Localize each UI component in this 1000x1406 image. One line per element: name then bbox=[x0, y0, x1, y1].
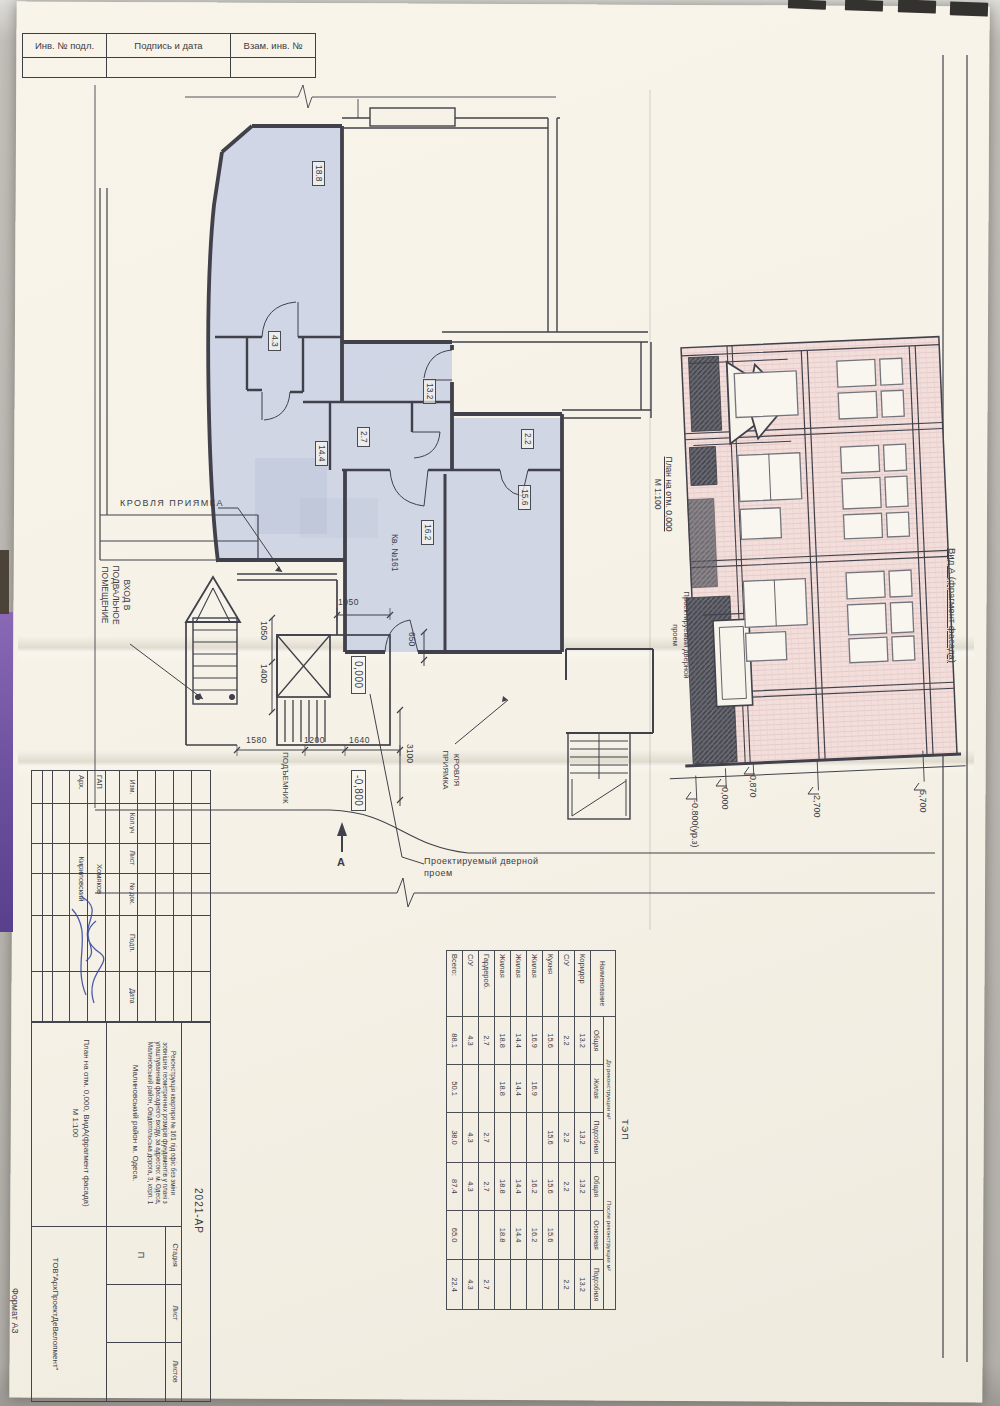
dim-label: 1640 bbox=[349, 735, 370, 745]
room-area-label: 18.8 bbox=[312, 161, 325, 186]
tep-value: 14.4 bbox=[511, 1210, 527, 1259]
tep-room-name: Кухня bbox=[543, 951, 559, 1017]
tep-value: 4.3 bbox=[463, 1017, 479, 1065]
tep-row: С/У4.34.34.34.3 bbox=[463, 951, 479, 1310]
dim-label: 650 bbox=[407, 632, 417, 646]
label-line: ПРИЯМКА bbox=[440, 744, 451, 796]
tb-col-ndok: № док. bbox=[129, 873, 136, 915]
room-area-label: 2.7 bbox=[357, 427, 370, 447]
label-line: План на отм. 0,000 bbox=[663, 438, 674, 550]
tep-value: 2.7 bbox=[479, 1260, 495, 1310]
tep-value bbox=[543, 1260, 559, 1310]
tep-row: Гардероб.2.72.72.72.7 bbox=[479, 951, 495, 1310]
stamp-cell: Подпись и дата bbox=[107, 34, 231, 58]
tb-col-izm: Изм. bbox=[129, 771, 136, 803]
room-area-label: 15.6 bbox=[518, 485, 531, 510]
room-area-label: 2.2 bbox=[521, 429, 534, 449]
tb-description: Реконструкція квартири № 161 під офіс бе… bbox=[147, 1023, 177, 1223]
tep-subhead: Подсобная bbox=[591, 1113, 604, 1163]
tep-value bbox=[463, 1065, 479, 1113]
facade-view bbox=[651, 336, 967, 802]
label-line: Реконструкція квартири № 161 під офіс бе… bbox=[169, 1023, 177, 1223]
label-line: улаштуванням фасадного входу, за адресою… bbox=[154, 1023, 162, 1223]
tep-value: 18.8 bbox=[495, 1017, 511, 1065]
tb-col-data: Дата bbox=[129, 971, 136, 1021]
tep-value: 18.8 bbox=[495, 1162, 511, 1210]
label-line: проем bbox=[670, 575, 681, 695]
tep-value: 4.3 bbox=[463, 1260, 479, 1310]
label-line: ПОДВАЛЬНОЕ bbox=[110, 552, 121, 638]
pit-roof-label-2: КРОВЛЯ ПРИЯМКА bbox=[440, 744, 462, 796]
tep-value: 13.2 bbox=[575, 1113, 591, 1163]
inventory-stamp-strip: Инв. № подл. Подпись и дата Взам. инв. № bbox=[22, 33, 316, 78]
tep-value: 15.6 bbox=[543, 1017, 559, 1065]
pit-roof-label: КРОВЛЯ ПРИЯМКА bbox=[120, 498, 224, 508]
tep-value bbox=[543, 1065, 559, 1113]
basement-entrance-label: ВХОД В ПОДВАЛЬНОЕ ПОМЕЩЕНИЕ bbox=[99, 552, 132, 638]
title-block: Изм. Кол.уч Лист № док. Подп. Дата ГАП Х… bbox=[31, 770, 211, 1402]
tep-subhead: Подсобная bbox=[591, 1260, 604, 1310]
label-line: ВХОД В bbox=[121, 552, 132, 638]
label-line: проем bbox=[424, 867, 539, 879]
facade-door-note: Проектируемый дверной проем bbox=[670, 575, 692, 695]
tep-value: 50.1 bbox=[447, 1065, 463, 1113]
tep-value bbox=[575, 1210, 591, 1259]
facade-elevation: 0,870 bbox=[748, 775, 758, 798]
tep-value: 4.3 bbox=[463, 1113, 479, 1163]
tep-value bbox=[527, 1113, 543, 1163]
tep-value: 16.2 bbox=[527, 1162, 543, 1210]
room-area-label: 13.2 bbox=[423, 379, 436, 404]
tep-group-after: После реконструкции м² bbox=[604, 1162, 616, 1309]
pen-signature bbox=[64, 891, 116, 1011]
tb-stage-value: П bbox=[136, 1226, 146, 1284]
tep-value bbox=[527, 1260, 543, 1310]
tb-doc-code: 2021-АР bbox=[193, 1021, 204, 1401]
tep-group-before: До реконструкции м² bbox=[604, 1017, 616, 1163]
tep-value bbox=[559, 1065, 575, 1113]
tep-room-name: Всего: bbox=[447, 951, 463, 1017]
tep-value: 2.2 bbox=[559, 1260, 575, 1310]
tep-value bbox=[575, 1065, 591, 1113]
facade-title: Вид А (фрагмент фасада) bbox=[947, 548, 958, 663]
tep-value bbox=[559, 1210, 575, 1259]
tb-company: ТОВ"АрхПроектДеВелопмент" bbox=[51, 1228, 60, 1400]
dim-label: 3100 bbox=[405, 744, 415, 763]
facade-elevation: 5,700 bbox=[918, 790, 928, 813]
tep-value bbox=[463, 1210, 479, 1259]
tep-value: 15.6 bbox=[543, 1113, 559, 1163]
label-line: зовнішніх геометричних розмірів фундамен… bbox=[162, 1023, 170, 1223]
dim-label: 1580 bbox=[246, 735, 267, 745]
label-line: М 1:100 bbox=[652, 438, 663, 550]
tep-value bbox=[511, 1113, 527, 1163]
tep-subhead: Основная bbox=[591, 1210, 604, 1259]
tep-value: 14.4 bbox=[511, 1162, 527, 1210]
tep-room-name: Жилая bbox=[527, 951, 543, 1017]
tep-value: 15.6 bbox=[543, 1162, 559, 1210]
stamp-cell-empty bbox=[23, 58, 107, 78]
tb-district: Малиновський район м. Одеса. bbox=[131, 1023, 140, 1223]
facade-elevation: 0,000 bbox=[720, 787, 730, 810]
projected-door-note: Проектируемый дверной проем bbox=[424, 855, 539, 879]
tep-value: 22.4 bbox=[447, 1260, 463, 1310]
elevation-label: 0,000 bbox=[351, 656, 366, 694]
room-area-label: 16.2 bbox=[421, 520, 434, 545]
lift-label: ПОДЪЕМНИК bbox=[281, 752, 290, 804]
tep-room-name: Гардероб. bbox=[479, 951, 495, 1017]
stamp-cell-empty bbox=[107, 58, 231, 78]
tep-row: Жилая18.818.818.818.8 bbox=[495, 951, 511, 1310]
tb-col-podp: Подп. bbox=[129, 915, 136, 971]
tep-value: 18.8 bbox=[495, 1210, 511, 1259]
tep-value: 13.2 bbox=[575, 1017, 591, 1065]
tep-value bbox=[511, 1260, 527, 1310]
tep-value: 2.7 bbox=[479, 1162, 495, 1210]
tep-subhead: Общая bbox=[591, 1162, 604, 1210]
tep-value bbox=[479, 1210, 495, 1259]
tep-room-name: Жилая bbox=[495, 951, 511, 1017]
section-mark: А bbox=[337, 856, 345, 868]
tep-table: ТЭП Наименование До реконструкции м² Пос… bbox=[446, 950, 630, 1310]
room-area-label: 4.3 bbox=[268, 331, 281, 351]
tep-value: 2.2 bbox=[559, 1113, 575, 1163]
dim-label: 1050 bbox=[338, 597, 359, 607]
tep-row: Кухня15.615.615.615.6 bbox=[543, 951, 559, 1310]
tep-title: ТЭП bbox=[616, 950, 630, 1310]
tep-room-name: Жилая bbox=[511, 951, 527, 1017]
label-line: План на отм. 0,000, ВидА(фрагмент фасада… bbox=[81, 1023, 92, 1223]
tb-role: Арх. bbox=[77, 771, 86, 847]
stamp-cell: Инв. № подл. bbox=[23, 34, 107, 58]
tep-row: Всего:88.150.138.087.465.022.4 bbox=[447, 951, 463, 1310]
label-line: М 1:100 bbox=[70, 1023, 81, 1223]
tep-value: 13.2 bbox=[575, 1260, 591, 1310]
apartment-number-label: Кв. №161 bbox=[390, 534, 400, 572]
elevation-label: -0,800 bbox=[351, 770, 366, 811]
tep-value: 16.9 bbox=[527, 1017, 543, 1065]
tep-value: 18.8 bbox=[495, 1065, 511, 1113]
tep-col-name: Наименование bbox=[591, 951, 616, 1017]
stamp-cell-empty bbox=[231, 58, 316, 78]
plan-title: План на отм. 0,000 М 1:100 bbox=[652, 438, 674, 550]
tep-value: 2.7 bbox=[479, 1017, 495, 1065]
dim-label: 1200 bbox=[304, 735, 325, 745]
tep-value: 14.4 bbox=[511, 1065, 527, 1113]
tep-value: 65.0 bbox=[447, 1210, 463, 1259]
tep-row: С/У2.22.22.22.2 bbox=[559, 951, 575, 1310]
label-line: Проектируемый дверной bbox=[424, 855, 539, 867]
tep-value: 2.7 bbox=[479, 1113, 495, 1163]
facade-elevation: 2,700 bbox=[812, 795, 822, 818]
tep-room-name: С/У bbox=[463, 951, 479, 1017]
tep-value: 16.2 bbox=[527, 1210, 543, 1259]
tep-value: 4.3 bbox=[463, 1162, 479, 1210]
tep-value bbox=[495, 1260, 511, 1310]
tb-sheets-label: Листов bbox=[172, 1342, 179, 1401]
tep-subhead: Жилая bbox=[591, 1065, 604, 1113]
tep-value bbox=[495, 1113, 511, 1163]
stamp-cell: Взам. инв. № bbox=[231, 34, 316, 58]
tep-value bbox=[479, 1065, 495, 1113]
label-line: КРОВЛЯ bbox=[451, 744, 462, 796]
tep-row: Коридор13.213.213.213.2 bbox=[575, 951, 591, 1310]
tep-value: 16.9 bbox=[527, 1065, 543, 1113]
tb-sheet-title: План на отм. 0,000, ВидА(фрагмент фасада… bbox=[70, 1023, 92, 1223]
label-line: Проектируемый дверной bbox=[681, 575, 692, 695]
tep-room-name: Коридор bbox=[575, 951, 591, 1017]
label-line: Малиновський район, Овідіопольська дорог… bbox=[147, 1023, 155, 1223]
dim-label: 1050 bbox=[259, 621, 269, 640]
tb-col-list: Лист bbox=[129, 843, 136, 873]
room-area-label: 14.4 bbox=[315, 441, 328, 466]
facade-elevation: -0.800(ур.з) bbox=[690, 800, 700, 848]
format-label: Формат А3 bbox=[10, 1288, 20, 1333]
tep-value: 87.4 bbox=[447, 1162, 463, 1210]
tep-row: Жилая16.916.916.216.2 bbox=[527, 951, 543, 1310]
tep-value: 88.1 bbox=[447, 1017, 463, 1065]
tep-value: 2.2 bbox=[559, 1162, 575, 1210]
tep-value: 14.4 bbox=[511, 1017, 527, 1065]
label-line: ПОМЕЩЕНИЕ bbox=[99, 552, 110, 638]
tep-value: 15.6 bbox=[543, 1210, 559, 1259]
photo-of-drawing: Инв. № подл. Подпись и дата Взам. инв. №… bbox=[0, 0, 1000, 1406]
tb-stage-label: Стадия bbox=[172, 1226, 179, 1284]
dim-label: 1400 bbox=[259, 664, 269, 683]
tep-subhead: Общая bbox=[591, 1017, 604, 1065]
tep-row: Жилая14.414.414.414.4 bbox=[511, 951, 527, 1310]
tep-room-name: С/У bbox=[559, 951, 575, 1017]
tep-value: 2.2 bbox=[559, 1017, 575, 1065]
tb-role: ГАП bbox=[95, 771, 104, 847]
tep-value: 13.2 bbox=[575, 1162, 591, 1210]
tep-value: 38.0 bbox=[447, 1113, 463, 1163]
tb-col-koluch: Кол.уч bbox=[129, 803, 136, 843]
facade-door bbox=[713, 619, 753, 706]
tb-sheet-label: Лист bbox=[172, 1284, 179, 1342]
